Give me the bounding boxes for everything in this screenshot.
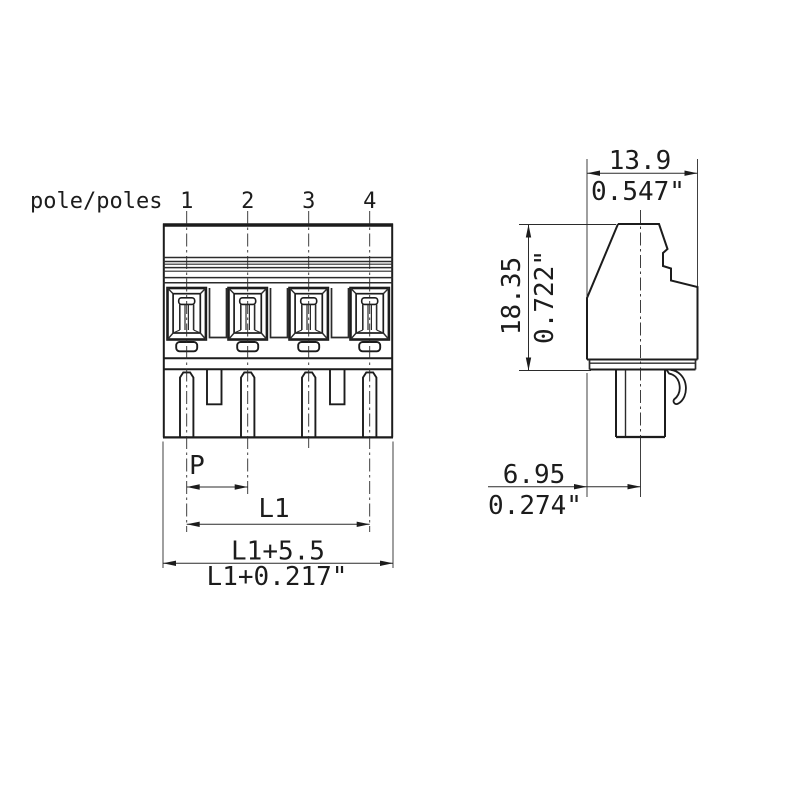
pole-number-2: 2 (241, 189, 254, 214)
pole-number-3: 3 (302, 189, 315, 214)
side-height-dimension: 18.35 0.722" (497, 225, 616, 371)
dim-pitch-label: P (189, 451, 205, 481)
side-width-dimension: 13.9 0.547" (587, 146, 698, 297)
poles-label: pole/poles (30, 189, 162, 214)
dim-width-mm-label: 13.9 (609, 146, 672, 176)
dim-height-mm-label: 18.35 (497, 257, 527, 335)
front-dimensions: P L1 L1+5.5 L1+0.217" (163, 442, 393, 593)
pole-number-1: 1 (180, 189, 193, 214)
pole-number-4: 4 (363, 189, 376, 214)
dim-height-inch-label: 0.722" (530, 250, 560, 344)
housing-slots (207, 369, 345, 404)
dim-overall-inch-label: L1+0.217" (207, 562, 348, 592)
dim-pin-offset-mm-label: 6.95 (503, 460, 566, 490)
technical-drawing-page: pole/poles 1 2 3 4 (0, 0, 800, 800)
dim-width-inch-label: 0.547" (591, 177, 685, 207)
latch-hook (667, 370, 686, 404)
side-profile (587, 224, 698, 437)
front-housing (163, 224, 393, 438)
drawing-canvas: pole/poles 1 2 3 4 (0, 0, 800, 800)
side-pin-offset-dimension: 6.95 0.274" (488, 373, 641, 521)
front-view: pole/poles 1 2 3 4 (30, 189, 393, 592)
dim-pin-offset-inch-label: 0.274" (488, 491, 582, 521)
side-view: 13.9 0.547" 18.35 0.722" 6.95 0.274" (488, 146, 698, 521)
dim-l1-label: L1 (258, 494, 289, 524)
pole-centerlines (187, 211, 370, 532)
